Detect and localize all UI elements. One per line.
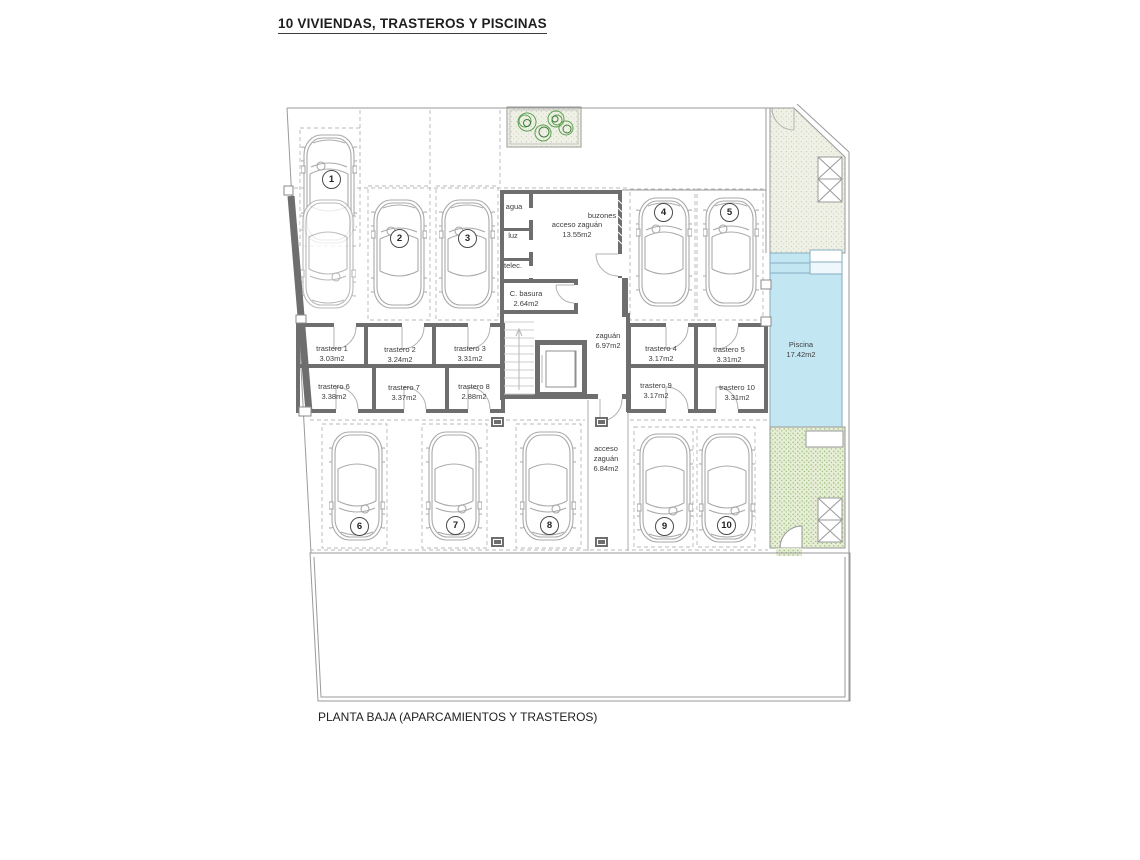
elevator [535, 340, 587, 397]
floor-plan-page: 10 VIVIENDAS, TRASTEROS Y PISCINAS [0, 0, 1140, 860]
room-label-trastero-4: trastero 4 3.17m2 [645, 344, 677, 364]
pool [770, 250, 842, 427]
room-label-telec: telec. [504, 261, 522, 271]
room-label-trastero-5: trastero 5 3.31m2 [713, 345, 745, 365]
room-label-acceso-zaguan-top: acceso zaguán 13.55m2 [552, 220, 602, 240]
floor-plan-graphics [0, 0, 1140, 860]
room-label-acceso-zaguan-bottom: acceso zaguán 6.84m2 [593, 444, 618, 474]
room-label-zaguan: zaguán 6.97m2 [595, 331, 620, 351]
plan-caption: PLANTA BAJA (APARCAMIENTOS Y TRASTEROS) [318, 710, 597, 724]
parking-number-10: 10 [717, 516, 736, 535]
parking-number-8: 8 [540, 516, 559, 535]
room-label-trastero-10: trastero 10 3.31m2 [719, 383, 755, 403]
storage-walls [296, 323, 768, 413]
parking-number-1: 1 [322, 170, 341, 189]
planter [507, 107, 581, 147]
parking-number-3: 3 [458, 229, 477, 248]
stairs [504, 322, 534, 394]
room-label-agua: agua [506, 202, 523, 212]
parking-number-4: 4 [654, 203, 673, 222]
room-label-c-basura: C. basura 2.64m2 [510, 289, 543, 309]
parking-number-6: 6 [350, 517, 369, 536]
room-label-trastero-1: trastero 1 3.03m2 [316, 344, 348, 364]
room-label-trastero-9: trastero 9 3.17m2 [640, 381, 672, 401]
room-label-trastero-2: trastero 2 3.24m2 [384, 345, 416, 365]
room-label-trastero-3: trastero 3 3.31m2 [454, 344, 486, 364]
room-label-luz: luz [508, 231, 518, 241]
car-3 [438, 200, 496, 308]
parking-number-5: 5 [720, 203, 739, 222]
parking-number-9: 9 [655, 517, 674, 536]
room-label-piscina: Piscina 17.42m2 [786, 340, 815, 360]
room-label-trastero-8: trastero 8 2.88m2 [458, 382, 490, 402]
parking-number-7: 7 [446, 516, 465, 535]
room-label-trastero-7: trastero 7 3.37m2 [388, 383, 420, 403]
room-label-trastero-6: trastero 6 3.38m2 [318, 382, 350, 402]
car-1-ghost [299, 200, 357, 308]
car-2 [370, 200, 428, 308]
parking-number-2: 2 [390, 229, 409, 248]
